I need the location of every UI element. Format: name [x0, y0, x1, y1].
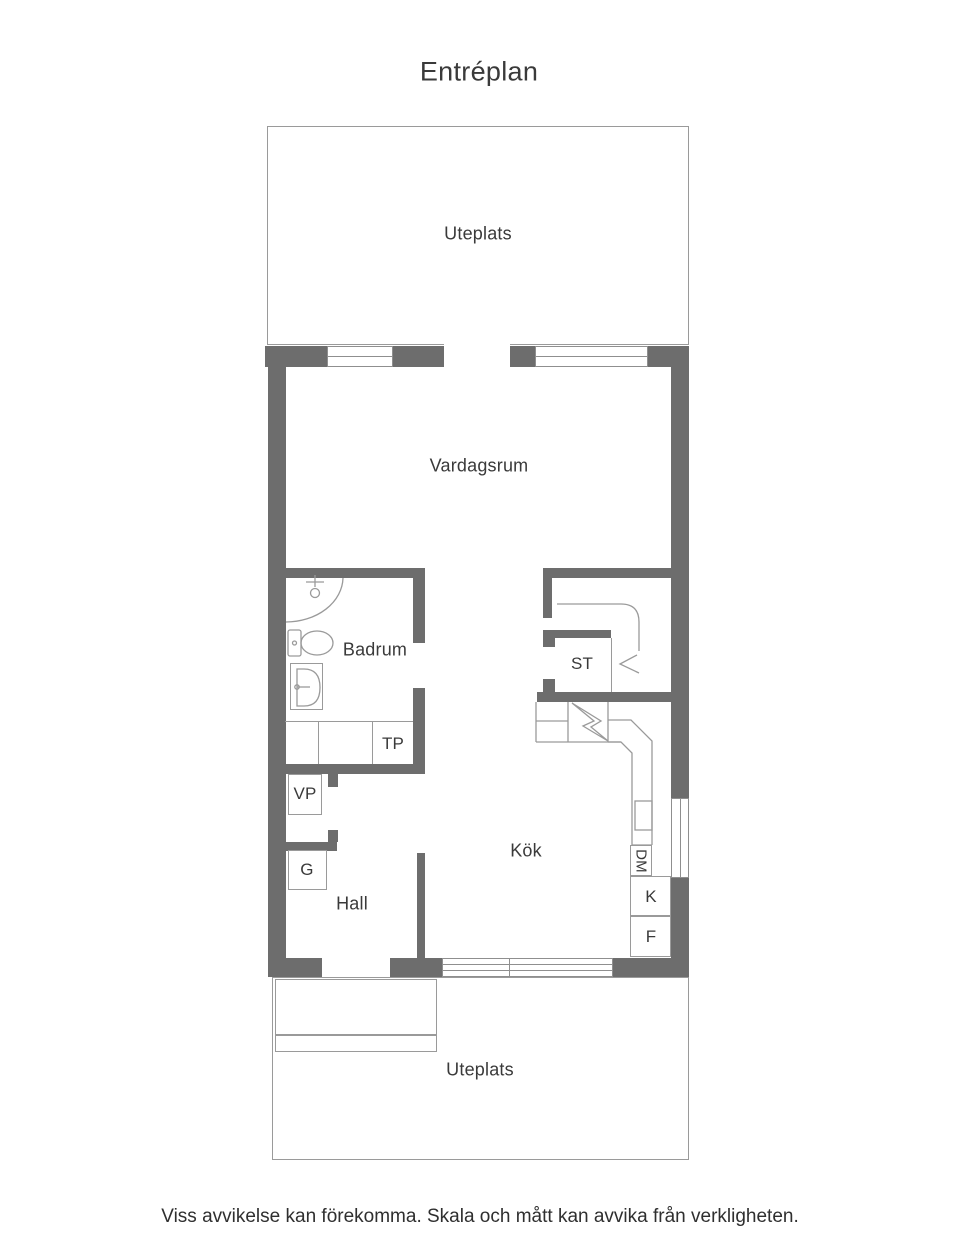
staircase-icon: [536, 702, 621, 742]
toilet-icon: [288, 630, 333, 656]
room-label-vp: VP: [293, 784, 316, 804]
room-label-g: G: [300, 860, 313, 880]
shower-icon: [286, 575, 343, 622]
room-label-badrum: Badrum: [343, 640, 407, 661]
room-label-uteplats-top: Uteplats: [444, 224, 512, 245]
kitchen-counter-icon: [608, 720, 652, 845]
room-label-kok: Kök: [510, 841, 542, 862]
washbasin-icon: [295, 669, 320, 706]
disclaimer-text: Viss avvikelse kan förekomma. Skala och …: [161, 1206, 799, 1228]
room-label-k: K: [645, 887, 657, 907]
room-label-tp: TP: [382, 734, 404, 754]
room-label-st: ST: [571, 654, 593, 674]
room-label-f: F: [646, 927, 657, 947]
stair-arrow-icon: [557, 604, 639, 673]
floor-plan: Entréplan: [0, 0, 960, 1256]
room-label-uteplats-bottom: Uteplats: [446, 1060, 514, 1081]
room-label-dm: DM: [633, 849, 650, 873]
room-label-hall: Hall: [336, 894, 368, 915]
stove-icon: [635, 801, 652, 830]
room-label-vardagsrum: Vardagsrum: [430, 456, 529, 477]
